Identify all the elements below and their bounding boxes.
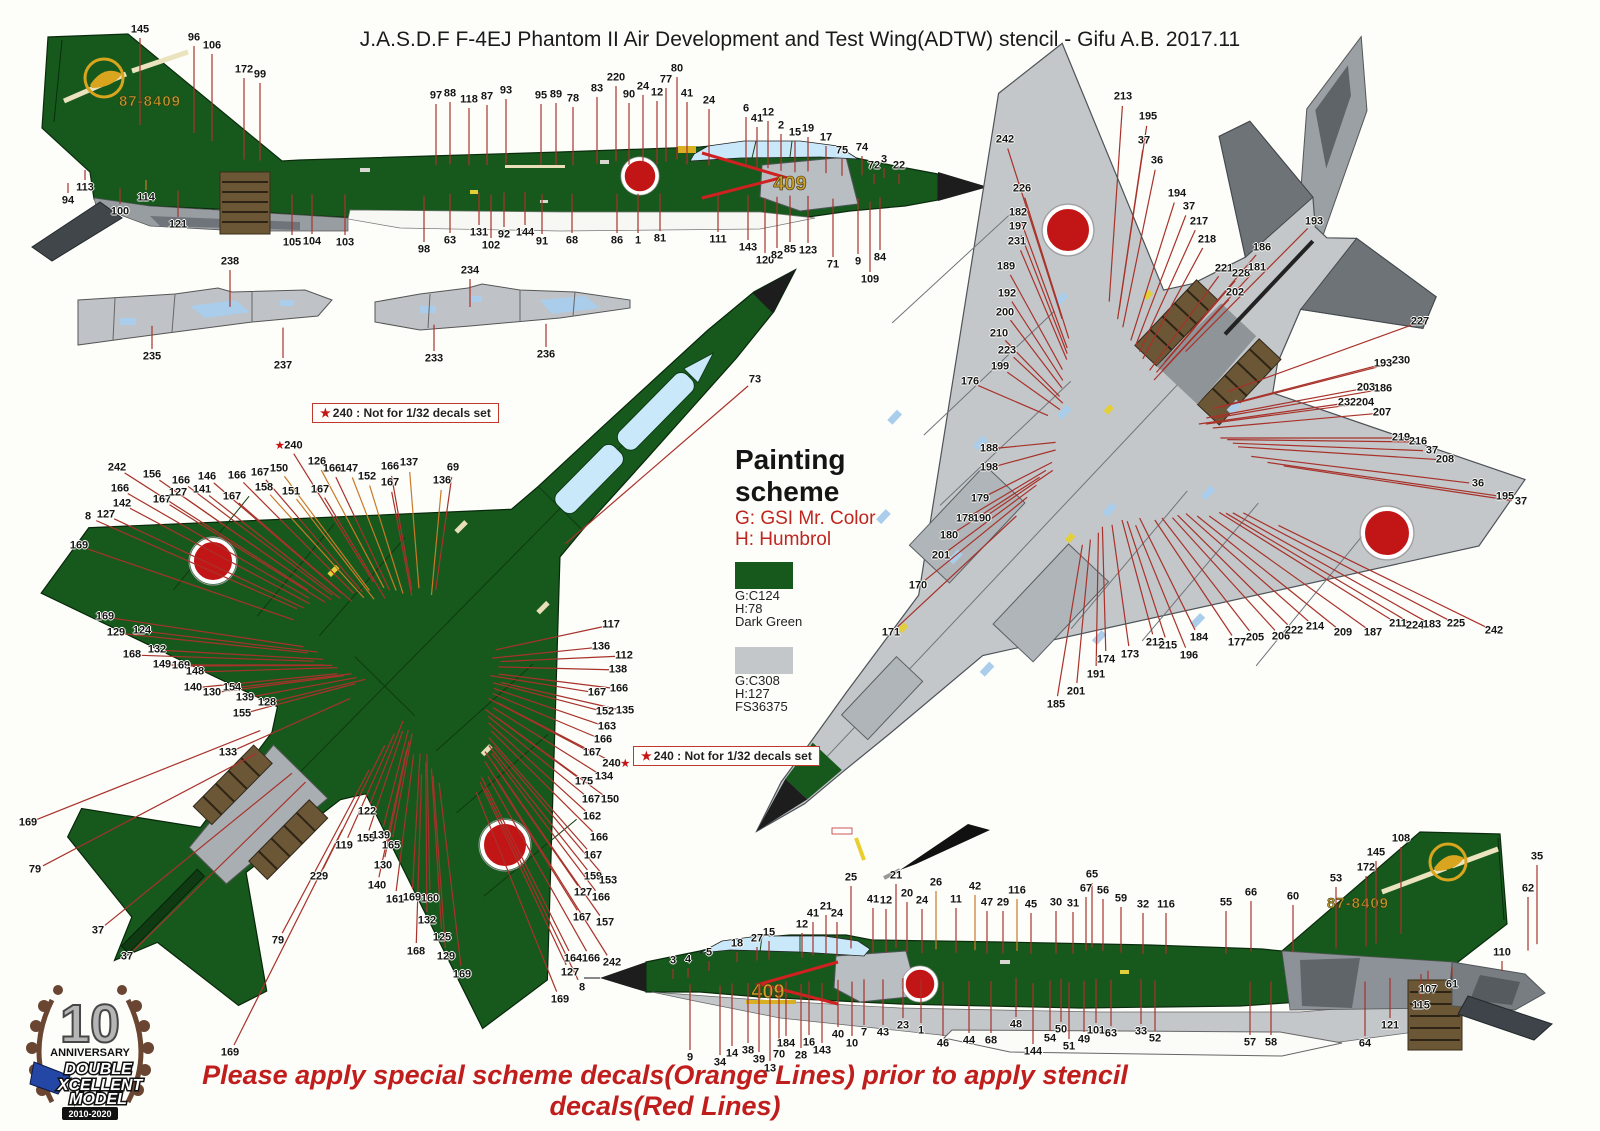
callout-222: 222 (1285, 626, 1303, 637)
callout-10: 10 (846, 1039, 858, 1050)
callout-96: 96 (188, 33, 200, 44)
callout-160: 160 (421, 894, 439, 905)
callout-68: 68 (985, 1036, 997, 1047)
callout-132: 132 (418, 916, 436, 927)
callout-238: 238 (221, 257, 239, 268)
callout-167: 167 (584, 851, 602, 862)
callout-168: 168 (123, 650, 141, 661)
callout-55: 55 (1220, 898, 1232, 909)
callout-127: 127 (97, 510, 115, 521)
callout-190: 190 (973, 514, 991, 525)
callout-24: 24 (916, 896, 928, 907)
callout-162: 162 (583, 812, 601, 823)
application-instruction: Please apply special scheme decals(Orang… (165, 1060, 1165, 1122)
callout-167: 167 (381, 478, 399, 489)
callout-109: 109 (861, 275, 879, 286)
callout-145: 145 (131, 25, 149, 36)
callout-79: 79 (272, 936, 284, 947)
callout-138: 138 (609, 665, 627, 676)
callout-146: 146 (198, 472, 216, 483)
callout-102: 102 (482, 241, 500, 252)
callout-188: 188 (980, 444, 998, 455)
callout-153: 153 (599, 876, 617, 887)
callout-116: 116 (1008, 886, 1026, 897)
callout-143: 143 (739, 243, 757, 254)
callout-214: 214 (1306, 622, 1324, 633)
callout-169: 169 (70, 541, 88, 552)
callout-232: 232 (1338, 398, 1356, 409)
callout-97: 97 (430, 91, 442, 102)
callout-236: 236 (537, 350, 555, 361)
callout-166: 166 (594, 735, 612, 746)
callout-119: 119 (335, 841, 353, 852)
callout-221: 221 (1215, 264, 1233, 275)
callout-242: 242 (603, 958, 621, 969)
callout-15: 15 (763, 928, 775, 939)
callout-137: 137 (400, 458, 418, 469)
callout-150: 150 (601, 795, 619, 806)
callout-211: 211 (1389, 619, 1407, 630)
callout-127: 127 (574, 888, 592, 899)
callout-240: 240★ (602, 759, 629, 770)
callout-1: 1 (635, 236, 641, 247)
callout-133: 133 (219, 748, 237, 759)
callout-167: 167 (311, 485, 329, 496)
callout-169: 169 (453, 970, 471, 981)
callout-173: 173 (1121, 650, 1139, 661)
callout-166: 166 (323, 464, 341, 475)
callout-12: 12 (796, 920, 808, 931)
callout-106: 106 (203, 41, 221, 52)
callout-215: 215 (1159, 641, 1177, 652)
callout-26: 26 (930, 878, 942, 889)
callout-191: 191 (1087, 670, 1105, 681)
callout-89: 89 (550, 90, 562, 101)
callout-17: 17 (820, 133, 832, 144)
callout-9: 9 (855, 257, 861, 268)
callout-187: 187 (1364, 628, 1382, 639)
callout-168: 168 (407, 947, 425, 958)
callout-43: 43 (877, 1028, 889, 1039)
callout-103: 103 (336, 238, 354, 249)
callout-132: 132 (148, 645, 166, 656)
callout-85: 85 (784, 245, 796, 256)
callout-200: 200 (996, 308, 1014, 319)
callout-36: 36 (1151, 156, 1163, 167)
callout-240: ★240 (275, 441, 302, 452)
callout-166: 166 (610, 684, 628, 695)
callout-158: 158 (255, 483, 273, 494)
callout-204: 204 (1356, 398, 1374, 409)
callout-167: 167 (588, 688, 606, 699)
callout-75: 75 (836, 146, 848, 157)
callout-48: 48 (1010, 1020, 1022, 1031)
callout-127: 127 (561, 968, 579, 979)
callout-169: 169 (221, 1048, 239, 1059)
callout-174: 174 (1097, 655, 1115, 666)
callout-180: 180 (940, 531, 958, 542)
callout-134: 134 (595, 772, 613, 783)
callout-94: 94 (62, 196, 74, 207)
callout-183: 183 (1423, 620, 1441, 631)
callout-91: 91 (536, 237, 548, 248)
callout-2: 2 (778, 121, 784, 132)
callout-130: 130 (374, 861, 392, 872)
callout-93: 93 (500, 86, 512, 97)
callout-104: 104 (303, 237, 321, 248)
callout-33: 33 (1135, 1027, 1147, 1038)
callout-12: 12 (762, 108, 774, 119)
swatch-dark-green (735, 562, 793, 589)
callout-4: 4 (685, 955, 691, 966)
callout-121: 121 (1381, 1021, 1399, 1032)
callout-178: 178 (956, 514, 974, 525)
legend-gsi-line: G: GSI Mr. Color (735, 509, 935, 529)
callout-95: 95 (535, 91, 547, 102)
callout-36: 36 (1472, 479, 1484, 490)
callout-114: 114 (137, 193, 155, 204)
decal-note-box-2: ★240 : Not for 1/32 decals set (633, 746, 820, 766)
callout-18: 18 (731, 939, 743, 950)
callout-118: 118 (460, 95, 478, 106)
callout-143: 143 (813, 1046, 831, 1057)
callout-108: 108 (1392, 834, 1410, 845)
callout-59: 59 (1115, 894, 1127, 905)
swatch-gray (735, 647, 793, 674)
callout-112: 112 (615, 651, 633, 662)
callout-78: 78 (567, 94, 579, 105)
callout-101: 101 (1087, 1026, 1105, 1037)
callout-209: 209 (1334, 628, 1352, 639)
callout-201: 201 (1067, 687, 1085, 698)
callout-8: 8 (85, 512, 91, 523)
callout-12: 12 (651, 88, 663, 99)
callout-135: 135 (616, 706, 634, 717)
callout-19: 19 (802, 124, 814, 135)
callout-20: 20 (901, 889, 913, 900)
callout-42: 42 (969, 882, 981, 893)
callout-164: 164 (564, 954, 582, 965)
callout-61: 61 (1446, 980, 1458, 991)
callout-92: 92 (498, 230, 510, 241)
callout-227: 227 (1411, 317, 1429, 328)
callout-152: 152 (596, 707, 614, 718)
callout-208: 208 (1436, 455, 1454, 466)
callout-50: 50 (1055, 1025, 1067, 1036)
callout-140: 140 (368, 881, 386, 892)
callout-165: 165 (382, 841, 400, 852)
callout-144: 144 (1024, 1047, 1042, 1058)
callout-202: 202 (1226, 288, 1244, 299)
legend-heading: Painting scheme (735, 444, 935, 508)
callout-37: 37 (1183, 202, 1195, 213)
callout-11: 11 (950, 895, 962, 906)
callout-107: 107 (1419, 985, 1437, 996)
stencil-instruction-sheet: 87-8409 409 (0, 0, 1600, 1131)
callout-83: 83 (591, 84, 603, 95)
callout-205: 205 (1246, 633, 1264, 644)
callout-166: 166 (590, 833, 608, 844)
callout-99: 99 (254, 70, 266, 81)
callout-176: 176 (961, 377, 979, 388)
callout-71: 71 (827, 260, 839, 271)
callout-12: 12 (880, 896, 892, 907)
callout-136: 136 (433, 476, 451, 487)
callout-216: 216 (1409, 437, 1427, 448)
callout-182: 182 (1009, 208, 1027, 219)
callout-223: 223 (998, 346, 1016, 357)
callout-199: 199 (991, 362, 1009, 373)
callout-22: 22 (893, 161, 905, 172)
callout-166: 166 (111, 484, 129, 495)
callout-167: 167 (573, 913, 591, 924)
callout-56: 56 (1097, 886, 1109, 897)
callout-233: 233 (425, 354, 443, 365)
callout-100: 100 (111, 207, 129, 218)
callout-230: 230 (1392, 356, 1410, 367)
swatch-gray-name: FS36375 (735, 700, 935, 713)
callout-77: 77 (660, 75, 672, 86)
callout-41: 41 (807, 909, 819, 920)
callout-68: 68 (566, 236, 578, 247)
sheet-title: J.A.S.D.F F-4EJ Phantom II Air Developme… (300, 28, 1300, 52)
callout-157: 157 (596, 918, 614, 929)
callout-3: 3 (670, 956, 676, 967)
callout-41: 41 (681, 89, 693, 100)
callout-207: 207 (1373, 408, 1391, 419)
callout-70: 70 (773, 1050, 785, 1061)
callout-52: 52 (1149, 1034, 1161, 1045)
callout-57: 57 (1244, 1038, 1256, 1049)
callout-73: 73 (749, 375, 761, 386)
callout-14: 14 (726, 1049, 738, 1060)
callout-63: 63 (1105, 1029, 1117, 1040)
callout-136: 136 (592, 642, 610, 653)
callout-29: 29 (997, 898, 1009, 909)
callout-64: 64 (1359, 1039, 1371, 1050)
callout-123: 123 (799, 246, 817, 257)
callout-181: 181 (1248, 263, 1266, 274)
callout-129: 129 (437, 952, 455, 963)
callout-195: 195 (1496, 492, 1514, 503)
callout-41: 41 (867, 895, 879, 906)
callout-37: 37 (121, 952, 133, 963)
callout-217: 217 (1190, 217, 1208, 228)
callout-189: 189 (997, 262, 1015, 273)
callout-125: 125 (433, 933, 451, 944)
callout-69: 69 (447, 463, 459, 474)
callout-166: 166 (228, 471, 246, 482)
callout-30: 30 (1050, 898, 1062, 909)
callout-198: 198 (980, 463, 998, 474)
callout-117: 117 (602, 620, 620, 631)
callout-128: 128 (258, 698, 276, 709)
callout-27: 27 (751, 934, 763, 945)
callout-167: 167 (251, 468, 269, 479)
callout-46: 46 (937, 1039, 949, 1050)
callout-37: 37 (1515, 497, 1527, 508)
callout-149: 149 (153, 660, 171, 671)
callout-79: 79 (29, 865, 41, 876)
callout-15: 15 (789, 128, 801, 139)
callout-235: 235 (143, 352, 161, 363)
callout-141: 141 (193, 485, 211, 496)
callout-147: 147 (340, 464, 358, 475)
callout-74: 74 (856, 143, 868, 154)
callout-47: 47 (981, 898, 993, 909)
callout-172: 172 (235, 65, 253, 76)
callout-67: 67 (1080, 884, 1092, 895)
callout-166: 166 (592, 893, 610, 904)
callout-6: 6 (743, 104, 749, 115)
callout-193: 193 (1374, 359, 1392, 370)
callout-53: 53 (1330, 874, 1342, 885)
callout-124: 124 (133, 626, 151, 637)
callout-122: 122 (358, 807, 376, 818)
callout-24: 24 (703, 96, 715, 107)
callout-60: 60 (1287, 892, 1299, 903)
callout-37: 37 (1138, 136, 1150, 147)
callout-115: 115 (1412, 1001, 1430, 1012)
callout-150: 150 (270, 464, 288, 475)
decal-note-box-1: ★240 : Not for 1/32 decals set (312, 403, 499, 423)
callout-163: 163 (598, 722, 616, 733)
callout-40: 40 (832, 1030, 844, 1041)
callout-169: 169 (551, 995, 569, 1006)
callout-8: 8 (579, 983, 585, 994)
callout-87: 87 (481, 92, 493, 103)
callout-3: 3 (881, 155, 887, 166)
callout-88: 88 (444, 89, 456, 100)
callout-179: 179 (971, 494, 989, 505)
callout-177: 177 (1228, 638, 1246, 649)
callout-186: 186 (1374, 384, 1392, 395)
callout-65: 65 (1086, 870, 1098, 881)
callout-105: 105 (283, 238, 301, 249)
callout-110: 110 (1493, 948, 1511, 959)
callout-156: 156 (143, 470, 161, 481)
callout-172: 172 (1357, 863, 1375, 874)
callout-186: 186 (1253, 243, 1271, 254)
callout-58: 58 (1265, 1038, 1277, 1049)
callout-234: 234 (461, 266, 479, 277)
callout-210: 210 (990, 329, 1008, 340)
callout-21: 21 (890, 871, 902, 882)
callout-51: 51 (1063, 1042, 1075, 1053)
callout-127: 127 (169, 488, 187, 499)
callout-140: 140 (184, 683, 202, 694)
callout-167: 167 (223, 492, 241, 503)
callout-66: 66 (1245, 888, 1257, 899)
callout-113: 113 (76, 183, 94, 194)
callout-194: 194 (1168, 189, 1186, 200)
callout-1: 1 (918, 1026, 924, 1037)
callout-145: 145 (1367, 848, 1385, 859)
callout-24: 24 (637, 82, 649, 93)
callout-203: 203 (1357, 383, 1375, 394)
star-icon: ★ (641, 749, 652, 763)
callout-23: 23 (897, 1021, 909, 1032)
callout-90: 90 (623, 90, 635, 101)
callout-80: 80 (671, 64, 683, 75)
callout-148: 148 (186, 667, 204, 678)
painting-scheme-legend: Painting scheme G: GSI Mr. Color H: Humb… (735, 444, 935, 713)
callout-166: 166 (582, 954, 600, 965)
callout-193: 193 (1305, 217, 1323, 228)
callout-167: 167 (583, 748, 601, 759)
callout-5: 5 (706, 948, 712, 959)
callout-225: 225 (1447, 619, 1465, 630)
callout-219: 219 (1392, 433, 1410, 444)
callout-81: 81 (654, 234, 666, 245)
callout-197: 197 (1009, 222, 1027, 233)
callout-169: 169 (96, 612, 114, 623)
legend-humbrol-line: H: Humbrol (735, 530, 935, 550)
callout-152: 152 (358, 472, 376, 483)
callout-116: 116 (1157, 900, 1175, 911)
callout-226: 226 (1013, 184, 1031, 195)
callout-195: 195 (1139, 112, 1157, 123)
callout-144: 144 (516, 228, 534, 239)
callout-45: 45 (1025, 900, 1037, 911)
callout-167: 167 (582, 795, 600, 806)
callout-35: 35 (1531, 852, 1543, 863)
callout-161: 161 (386, 895, 404, 906)
callout-218: 218 (1198, 235, 1216, 246)
callout-213: 213 (1114, 92, 1132, 103)
callout-131: 131 (470, 228, 488, 239)
callout-139: 139 (236, 693, 254, 704)
callout-224: 224 (1406, 621, 1424, 632)
callout-166: 166 (381, 462, 399, 473)
callout-7: 7 (861, 1028, 867, 1039)
callout-220: 220 (607, 73, 625, 84)
callout-84: 84 (874, 253, 886, 264)
callout-72: 72 (868, 161, 880, 172)
callout-237: 237 (274, 361, 292, 372)
callout-242: 242 (1485, 626, 1503, 637)
callout-129: 129 (107, 628, 125, 639)
callout-121: 121 (169, 220, 187, 231)
callout-175: 175 (575, 777, 593, 788)
callout-37: 37 (92, 926, 104, 937)
callout-24: 24 (831, 909, 843, 920)
callout-98: 98 (418, 245, 430, 256)
callout-184: 184 (1190, 633, 1208, 644)
callout-111: 111 (709, 235, 726, 246)
callout-169: 169 (19, 818, 37, 829)
callout-142: 142 (113, 499, 131, 510)
callout-196: 196 (1180, 651, 1198, 662)
callout-25: 25 (845, 873, 857, 884)
callout-192: 192 (998, 289, 1016, 300)
callout-130: 130 (203, 688, 221, 699)
swatch-dark-green-name: Dark Green (735, 615, 935, 628)
callout-31: 31 (1067, 899, 1079, 910)
callout-63: 63 (444, 236, 456, 247)
callout-229: 229 (310, 872, 328, 883)
callout-242: 242 (996, 135, 1014, 146)
callout-231: 231 (1008, 237, 1026, 248)
callout-185: 185 (1047, 700, 1065, 711)
callout-155: 155 (233, 709, 251, 720)
star-icon: ★ (320, 406, 331, 420)
callout-166: 166 (172, 476, 190, 487)
callout-242: 242 (108, 463, 126, 474)
callout-44: 44 (963, 1036, 975, 1047)
callout-169: 169 (403, 893, 421, 904)
callout-86: 86 (611, 236, 623, 247)
